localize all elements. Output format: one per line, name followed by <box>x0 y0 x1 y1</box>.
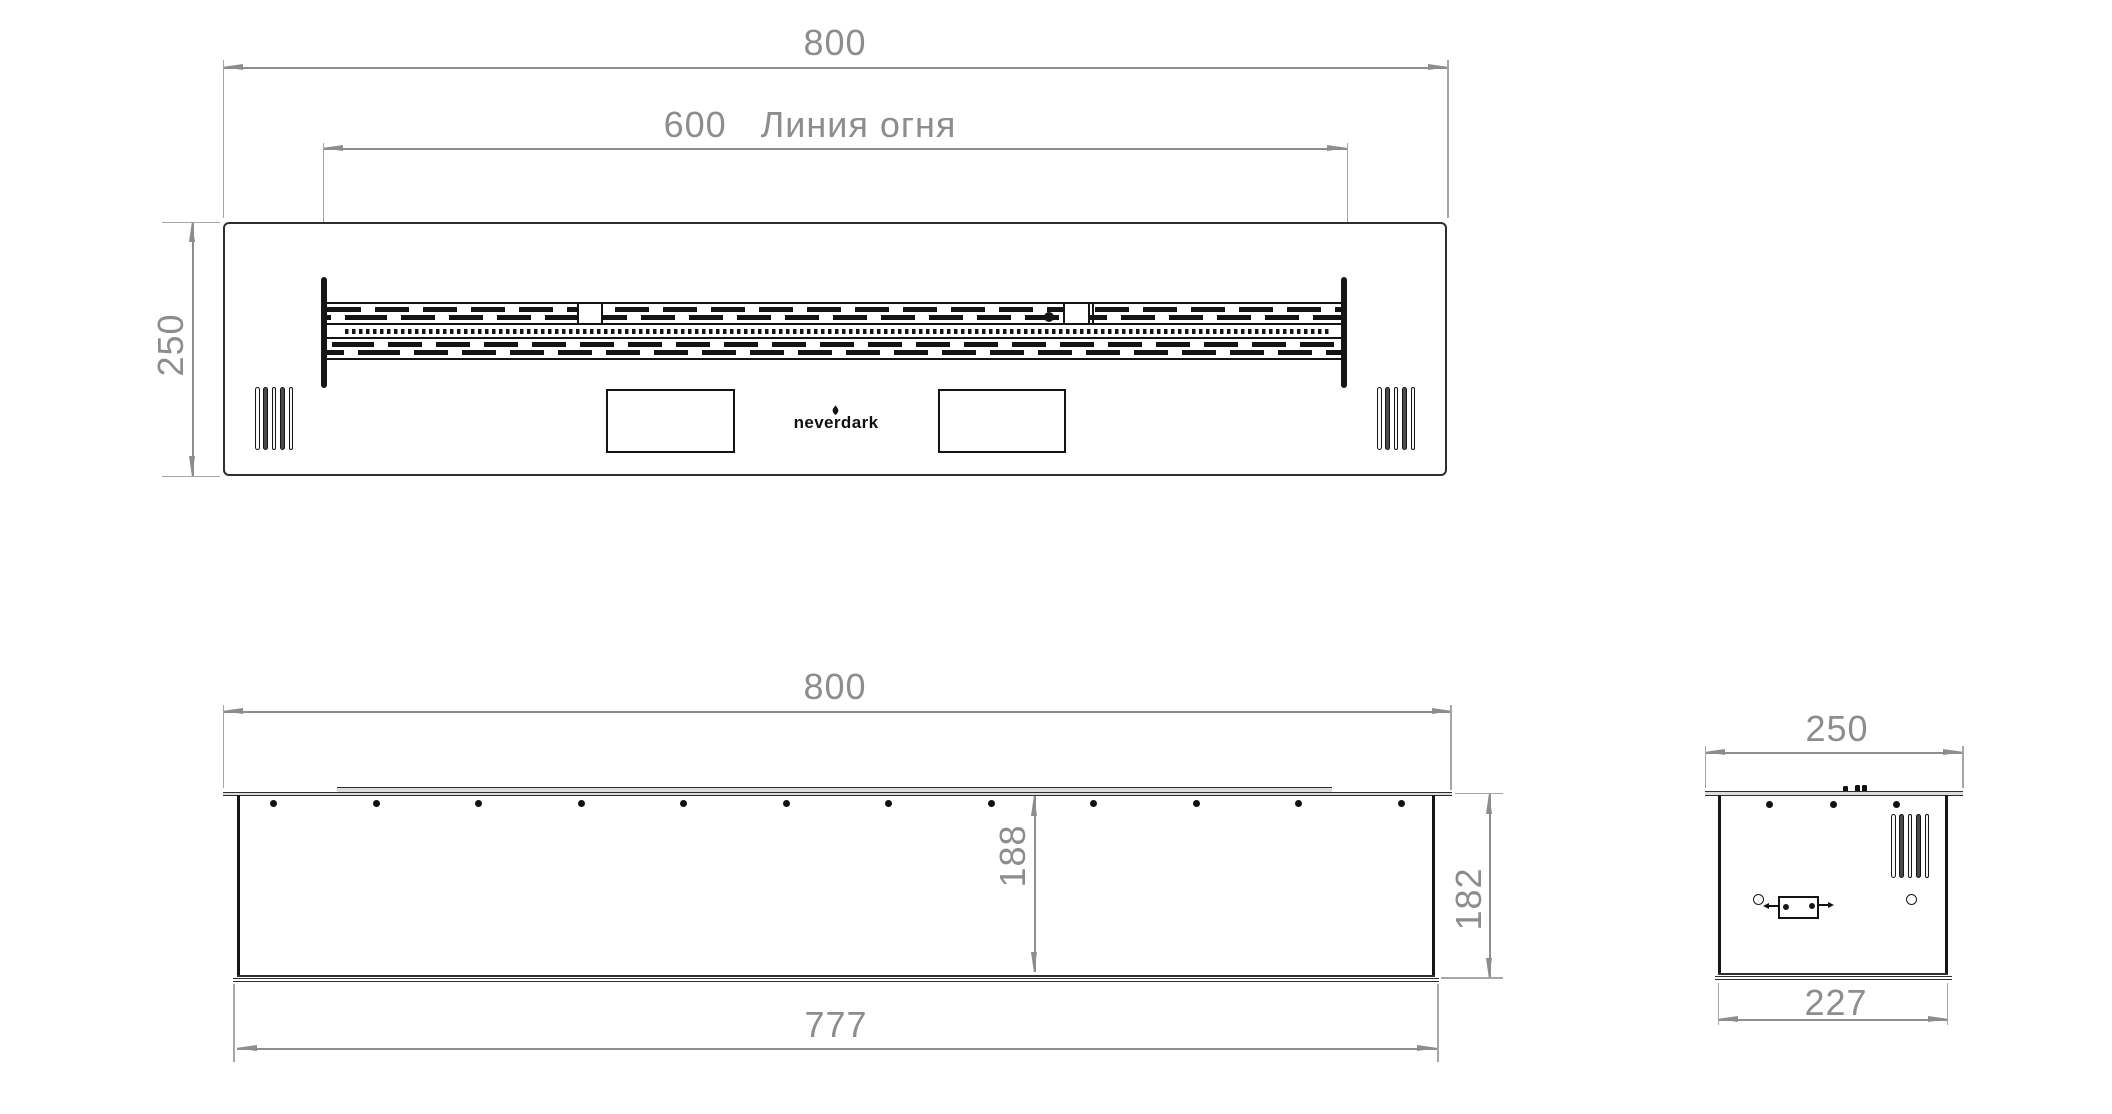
dim-side-bottom-depth-label: 227 <box>1706 982 1966 1024</box>
terminal-pin <box>1818 904 1828 906</box>
side-view: 250 227 <box>0 0 2112 1114</box>
terminal-pin <box>1769 905 1779 907</box>
extension-line <box>1718 983 1720 1025</box>
side-flange <box>1705 791 1963 796</box>
mounting-hole <box>1753 894 1764 905</box>
dim-side-depth-line <box>1705 752 1963 754</box>
terminal-screw <box>1783 904 1789 910</box>
terminal-pin-tip <box>1763 903 1769 909</box>
dim-side-depth-label: 250 <box>1707 708 1967 750</box>
screw-hole <box>1893 801 1900 808</box>
terminal-pin-tip <box>1828 902 1834 908</box>
side-bottom-plate <box>1715 976 1952 980</box>
side-body-bottom-edge <box>1718 973 1948 975</box>
side-body-right-edge <box>1945 795 1948 975</box>
vent-grille-side <box>1891 814 1929 878</box>
extension-line <box>1705 746 1707 788</box>
screw-hole <box>1830 801 1837 808</box>
mounting-hole <box>1906 894 1917 905</box>
extension-line <box>1962 746 1964 788</box>
extension-line <box>1947 983 1949 1025</box>
screw-hole <box>1766 801 1773 808</box>
terminal-screw <box>1809 903 1815 909</box>
screw-hole-row <box>1766 801 1900 808</box>
side-body-left-edge <box>1718 795 1721 975</box>
